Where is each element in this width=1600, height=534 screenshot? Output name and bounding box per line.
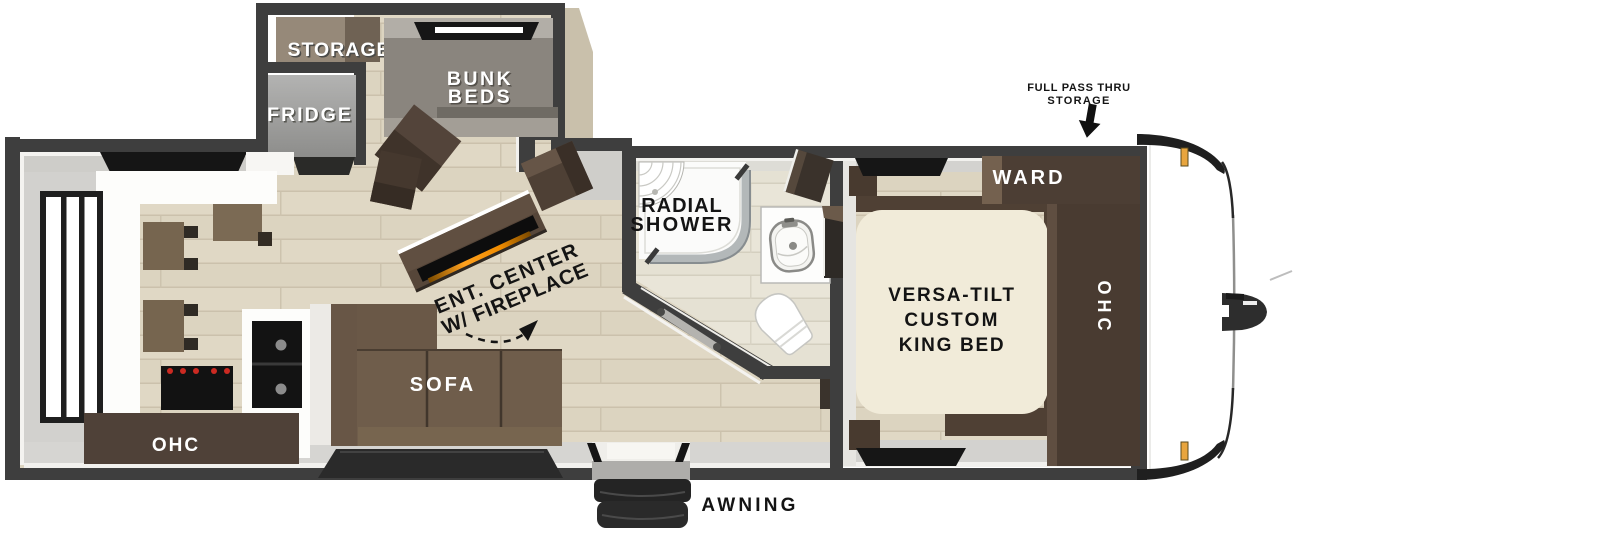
- svg-text:SHOWER: SHOWER: [630, 214, 733, 236]
- svg-text:AWNING: AWNING: [701, 495, 798, 516]
- svg-text:WARD: WARD: [992, 167, 1065, 189]
- svg-text:FRIDGE: FRIDGE: [267, 104, 353, 126]
- svg-text:SOFA: SOFA: [410, 374, 476, 396]
- svg-text:BEDS: BEDS: [448, 86, 512, 108]
- svg-text:KING BED: KING BED: [899, 335, 1006, 356]
- svg-text:OHC: OHC: [1094, 281, 1114, 336]
- svg-text:OHC: OHC: [152, 435, 200, 456]
- svg-text:STORAGE: STORAGE: [1047, 95, 1110, 107]
- svg-text:VERSA-TILT: VERSA-TILT: [888, 285, 1015, 306]
- svg-text:STORAGE: STORAGE: [287, 39, 390, 61]
- svg-text:CUSTOM: CUSTOM: [904, 310, 999, 331]
- svg-text:FULL PASS THRU: FULL PASS THRU: [1027, 82, 1131, 94]
